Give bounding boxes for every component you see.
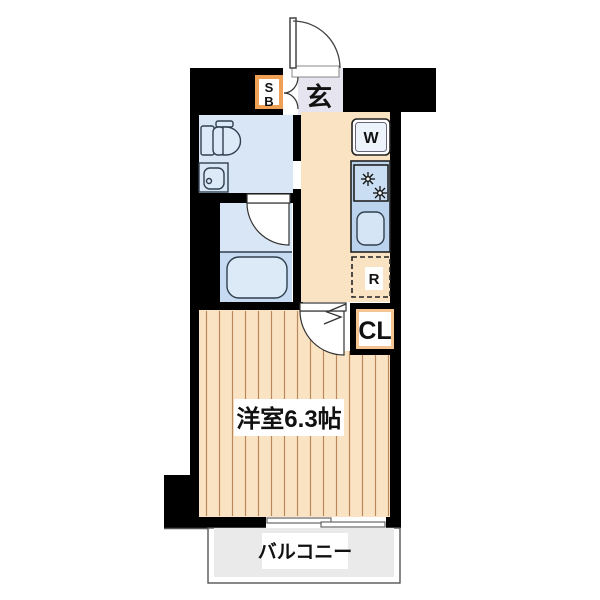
wall-bottom-to-window [199,516,268,528]
floor-plan-page: SB 玄 W R CL 洋室6.3帖 [0,0,600,600]
wall-left [190,68,199,477]
window-sash-right [321,522,385,527]
floor-plan: SB 玄 W R CL 洋室6.3帖 [0,0,600,600]
wall-hall-west [293,112,301,311]
closet-label: CL [358,317,391,345]
stove-burner-2 [373,186,387,200]
wall-top-right-band [343,68,436,112]
toilet-cistern-button [216,121,233,127]
shoebox-label: SB [264,80,273,109]
entrance-door-arc [293,21,340,68]
stove-burner-1 [361,172,375,186]
room-label: 洋室6.3帖 [236,405,341,433]
toilet-door-opening [293,161,301,189]
refrigerator-label: R [369,271,380,288]
wall-bath-left [199,193,220,311]
entrance-door-leaf [290,18,296,68]
entrance-label: 玄 [306,82,332,112]
toilet-hand-basin [204,168,224,189]
bath-door-leaf [247,194,290,203]
bathtub [227,257,287,298]
wall-bath-bottom [199,302,303,311]
kitchen-sink [357,212,384,245]
entrance-threshold [292,66,339,77]
balcony-label: バルコニー [258,541,353,563]
toilet-tank [201,126,214,155]
washer-label: W [363,130,379,147]
